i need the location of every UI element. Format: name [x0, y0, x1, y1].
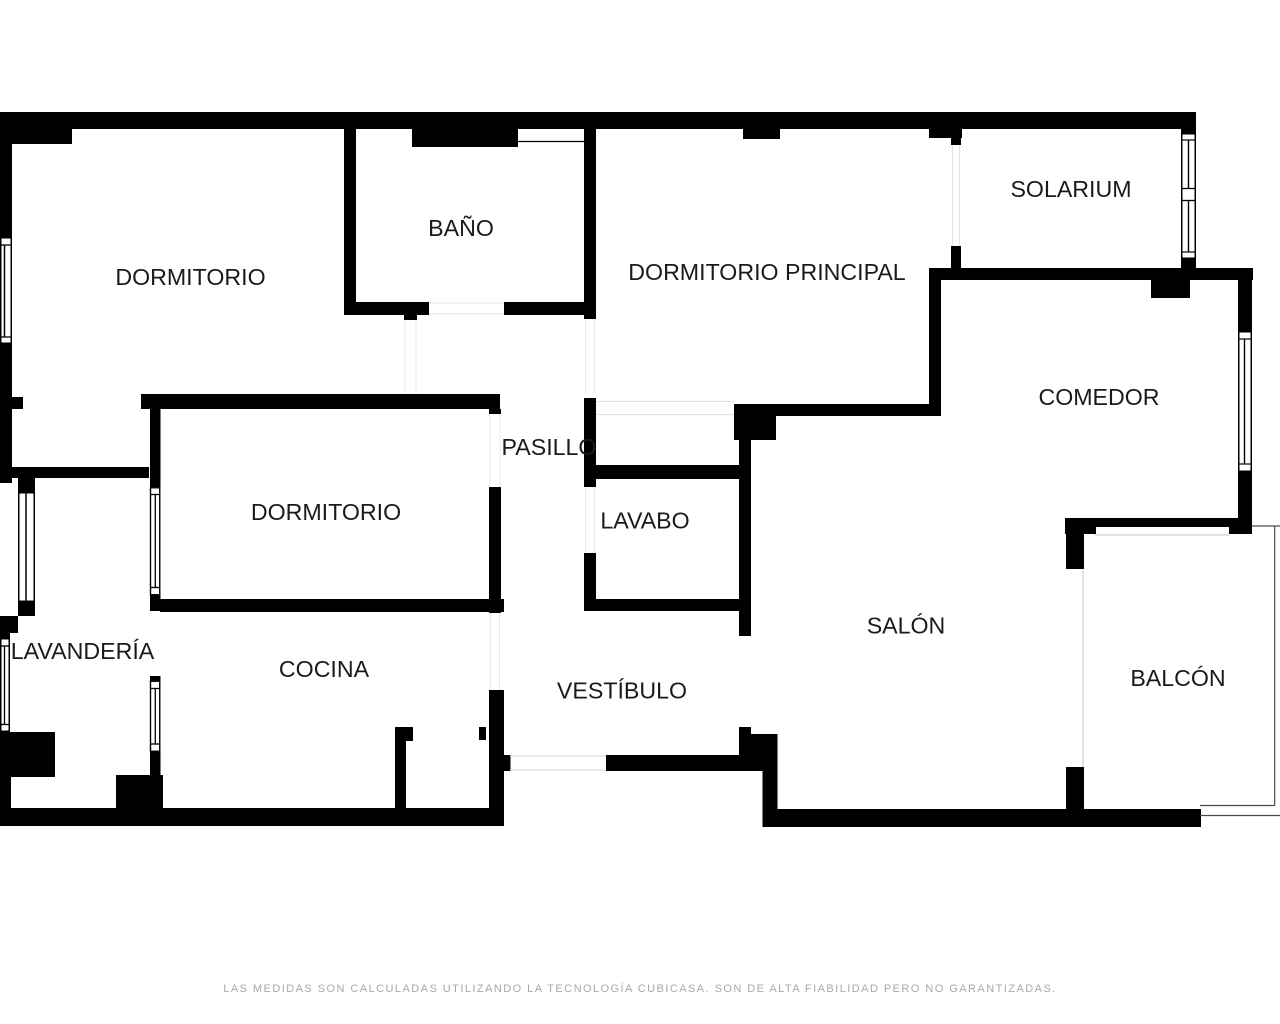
svg-text:SALÓN: SALÓN — [867, 613, 946, 639]
svg-text:BALCÓN: BALCÓN — [1130, 665, 1225, 691]
svg-text:DORMITORIO: DORMITORIO — [115, 264, 265, 290]
svg-text:DORMITORIO: DORMITORIO — [251, 499, 401, 525]
svg-text:LAVABO: LAVABO — [600, 508, 689, 534]
svg-text:LAVANDERÍA: LAVANDERÍA — [11, 638, 155, 664]
svg-text:COCINA: COCINA — [279, 656, 370, 682]
svg-text:DORMITORIO PRINCIPAL: DORMITORIO PRINCIPAL — [628, 259, 906, 285]
svg-text:PASILLO: PASILLO — [502, 434, 597, 460]
svg-text:LAS MEDIDAS SON CALCULADAS UTI: LAS MEDIDAS SON CALCULADAS UTILIZANDO LA… — [223, 982, 1056, 995]
svg-text:COMEDOR: COMEDOR — [1038, 384, 1159, 410]
svg-text:VESTÍBULO: VESTÍBULO — [557, 678, 687, 704]
svg-text:SOLARIUM: SOLARIUM — [1010, 176, 1131, 202]
svg-text:BAÑO: BAÑO — [428, 215, 494, 241]
